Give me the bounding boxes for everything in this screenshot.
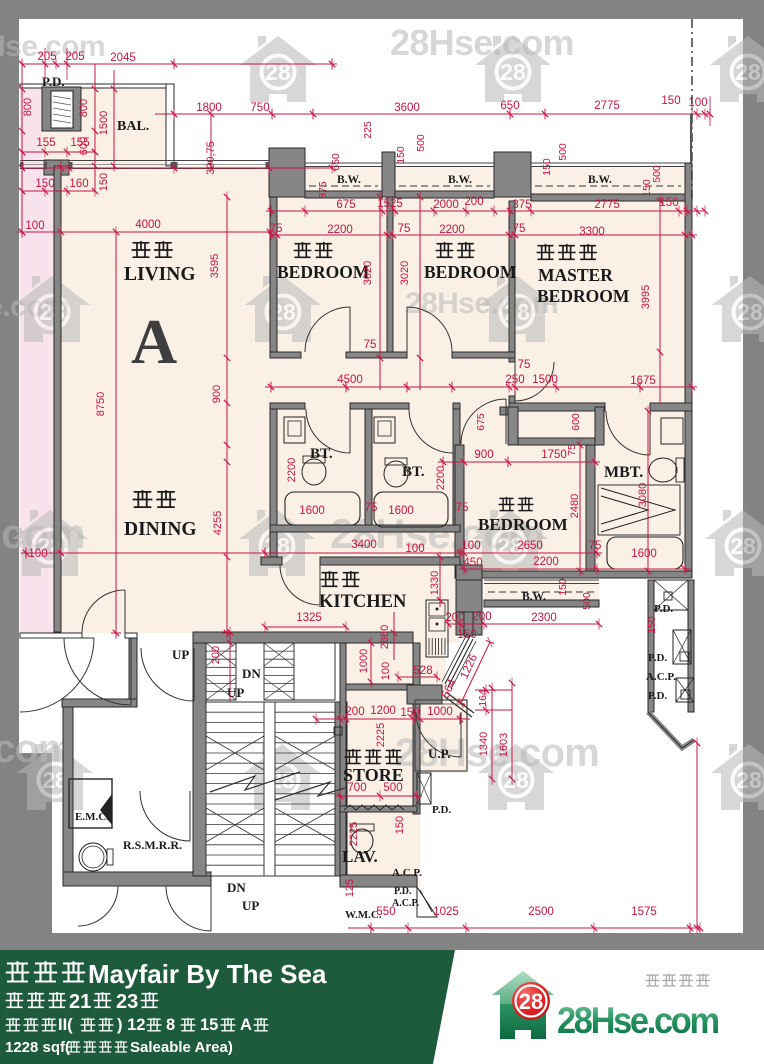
- svg-text:2200: 2200: [286, 458, 298, 482]
- svg-text:550: 550: [376, 906, 395, 918]
- svg-text:8750: 8750: [95, 392, 107, 416]
- svg-text:P.D.: P.D.: [648, 652, 667, 664]
- svg-text:4000: 4000: [135, 219, 161, 231]
- svg-text:100: 100: [28, 548, 47, 560]
- svg-text:75: 75: [365, 502, 378, 514]
- svg-text:700: 700: [347, 782, 366, 794]
- svg-text:B.W.: B.W.: [522, 591, 546, 603]
- svg-text:1330: 1330: [429, 571, 441, 595]
- svg-text:500: 500: [557, 143, 569, 161]
- svg-text:A.C.P.: A.C.P.: [392, 898, 420, 909]
- svg-text:P.D.: P.D.: [654, 603, 673, 615]
- svg-text:155: 155: [36, 137, 55, 149]
- svg-text:875: 875: [317, 181, 329, 199]
- svg-text:150: 150: [641, 179, 653, 197]
- svg-text:B.W.: B.W.: [448, 174, 472, 186]
- svg-text:1600: 1600: [299, 505, 325, 517]
- svg-text:2225: 2225: [375, 723, 387, 747]
- svg-text:528: 528: [413, 665, 432, 677]
- svg-text:450: 450: [463, 557, 482, 569]
- svg-text:150: 150: [661, 95, 680, 107]
- svg-text:150: 150: [35, 178, 54, 190]
- svg-text:3020: 3020: [399, 261, 411, 285]
- svg-text:R.S.M.R.R.: R.S.M.R.R.: [123, 838, 182, 852]
- svg-text:2200: 2200: [327, 224, 353, 236]
- svg-text:28: 28: [503, 767, 529, 793]
- svg-text:1000: 1000: [427, 706, 453, 718]
- svg-text:800: 800: [78, 99, 90, 117]
- svg-text:28Hse.com: 28Hse.com: [390, 22, 574, 63]
- svg-text:1500: 1500: [532, 374, 558, 386]
- svg-text:1200: 1200: [370, 705, 396, 717]
- svg-text:) 12: ) 12: [117, 1016, 145, 1034]
- svg-text:DN: DN: [242, 666, 261, 681]
- svg-text:28: 28: [504, 299, 530, 325]
- svg-text:BEDROOM: BEDROOM: [424, 262, 517, 282]
- svg-text:28: 28: [730, 533, 756, 559]
- svg-text:DN: DN: [227, 880, 246, 895]
- svg-text:500: 500: [581, 592, 593, 610]
- svg-text:150: 150: [395, 146, 407, 164]
- svg-text:28: 28: [737, 299, 763, 325]
- svg-text:2480: 2480: [569, 494, 581, 518]
- svg-text:21: 21: [69, 991, 91, 1013]
- svg-text:675: 675: [336, 199, 355, 211]
- svg-text:P.D.: P.D.: [648, 690, 667, 702]
- svg-text:BAL.: BAL.: [117, 119, 149, 134]
- svg-text:8: 8: [166, 1016, 175, 1034]
- svg-text:2880: 2880: [379, 625, 391, 649]
- svg-text:100: 100: [405, 543, 424, 555]
- svg-text:28: 28: [265, 59, 291, 85]
- svg-text:160: 160: [69, 178, 88, 190]
- svg-text:2200: 2200: [439, 224, 465, 236]
- svg-text:750: 750: [250, 102, 269, 114]
- svg-text:2045: 2045: [110, 52, 136, 64]
- svg-text:150: 150: [557, 578, 569, 596]
- svg-text:P.D.: P.D.: [394, 886, 412, 897]
- svg-text:1228 sqf(: 1228 sqf(: [5, 1039, 70, 1056]
- svg-text:LAV.: LAV.: [342, 847, 378, 866]
- svg-text:P.D.: P.D.: [432, 804, 451, 816]
- svg-text:2650: 2650: [517, 540, 543, 552]
- svg-text:A.C.P.: A.C.P.: [392, 867, 422, 879]
- svg-text:75: 75: [364, 339, 377, 351]
- svg-text:28: 28: [519, 989, 543, 1014]
- svg-text:100: 100: [461, 540, 480, 552]
- svg-text:3600: 3600: [394, 102, 420, 114]
- svg-text:100: 100: [380, 662, 392, 680]
- svg-text:150: 150: [98, 173, 110, 191]
- svg-text:75: 75: [398, 223, 411, 235]
- svg-text:15: 15: [200, 1016, 218, 1034]
- svg-text:650: 650: [330, 153, 342, 171]
- svg-text:75: 75: [518, 359, 531, 371]
- svg-text:MASTER: MASTER: [538, 265, 613, 285]
- svg-text:23: 23: [116, 991, 138, 1013]
- svg-text:150: 150: [400, 707, 419, 719]
- svg-text:BT.: BT.: [310, 446, 333, 462]
- svg-text:200: 200: [345, 706, 364, 718]
- svg-text:1340: 1340: [478, 732, 490, 756]
- svg-text:2225: 2225: [348, 822, 360, 846]
- svg-text:2500: 2500: [528, 906, 554, 918]
- svg-text:A: A: [131, 306, 177, 377]
- svg-text:2200: 2200: [533, 556, 559, 568]
- svg-text:1325: 1325: [296, 612, 322, 624]
- svg-text:600: 600: [570, 413, 582, 431]
- svg-text:BEDROOM: BEDROOM: [537, 286, 630, 306]
- svg-text:28: 28: [736, 767, 762, 793]
- svg-text:3595: 3595: [209, 254, 221, 278]
- svg-text:B.W.: B.W.: [337, 174, 361, 186]
- svg-text:2200: 2200: [435, 466, 447, 490]
- svg-text:125: 125: [344, 879, 356, 897]
- svg-text:U.P.: U.P.: [428, 746, 451, 761]
- svg-text:200: 200: [445, 612, 464, 624]
- svg-text:900: 900: [474, 449, 493, 461]
- svg-text:MBT.: MBT.: [604, 464, 643, 481]
- svg-text:1575: 1575: [631, 906, 657, 918]
- svg-text:500: 500: [415, 134, 427, 152]
- svg-text:1600: 1600: [388, 505, 414, 517]
- svg-text:UP: UP: [242, 898, 259, 913]
- svg-text:675: 675: [475, 413, 487, 431]
- svg-text:2775: 2775: [594, 100, 620, 112]
- svg-text:28: 28: [500, 59, 526, 85]
- svg-text:100: 100: [25, 220, 44, 232]
- svg-text:300,75: 300,75: [205, 141, 217, 175]
- svg-text:100: 100: [688, 97, 707, 109]
- svg-text:A.C.P.: A.C.P.: [646, 671, 676, 683]
- svg-text:28Hse.com: 28Hse.com: [557, 1000, 718, 1041]
- svg-text:150: 150: [394, 816, 406, 834]
- svg-text:200: 200: [464, 196, 483, 208]
- svg-text:150: 150: [541, 158, 553, 176]
- svg-text:E.M.C.: E.M.C.: [75, 811, 109, 823]
- svg-text:3995: 3995: [640, 285, 652, 309]
- svg-text:II(: II(: [58, 1016, 73, 1034]
- svg-text:150: 150: [646, 616, 658, 634]
- svg-text:3400: 3400: [351, 539, 377, 551]
- svg-text:1500: 1500: [98, 111, 110, 135]
- svg-text:3300: 3300: [579, 226, 605, 238]
- svg-text:1750: 1750: [541, 449, 567, 461]
- svg-text:205: 205: [37, 51, 56, 63]
- svg-text:200: 200: [210, 646, 222, 664]
- svg-text:4255: 4255: [212, 511, 224, 535]
- svg-text:75: 75: [566, 444, 578, 456]
- svg-text:1000: 1000: [358, 649, 370, 673]
- svg-text:4500: 4500: [337, 374, 363, 386]
- svg-text:3020: 3020: [362, 261, 374, 285]
- svg-text:2300: 2300: [531, 612, 557, 624]
- svg-text:LIVING: LIVING: [124, 264, 196, 285]
- svg-text:1025: 1025: [433, 906, 459, 918]
- svg-text:DINING: DINING: [124, 519, 197, 540]
- svg-text:225: 225: [362, 121, 374, 139]
- svg-text:205: 205: [65, 51, 84, 63]
- svg-text:KITCHEN: KITCHEN: [319, 592, 407, 612]
- svg-text:BEDROOM: BEDROOM: [277, 262, 370, 282]
- svg-text:BT.: BT.: [402, 464, 425, 480]
- svg-text:75: 75: [456, 502, 469, 514]
- svg-text:900: 900: [211, 385, 223, 403]
- svg-text:200: 200: [472, 611, 491, 623]
- svg-text:375: 375: [512, 199, 531, 211]
- svg-text:75: 75: [589, 540, 602, 552]
- svg-text:Saleable Area): Saleable Area): [130, 1039, 233, 1056]
- svg-text:1675: 1675: [630, 375, 656, 387]
- svg-text:1600: 1600: [631, 548, 657, 560]
- svg-text:600: 600: [78, 137, 90, 155]
- svg-text:2775: 2775: [594, 199, 620, 211]
- svg-text:A: A: [240, 1016, 252, 1034]
- svg-text:UP: UP: [172, 647, 189, 662]
- svg-text:Mayfair By The Sea: Mayfair By The Sea: [88, 959, 327, 989]
- svg-text:75: 75: [513, 223, 526, 235]
- svg-text:1525: 1525: [377, 198, 403, 210]
- svg-text:3080: 3080: [637, 483, 649, 507]
- svg-text:150: 150: [457, 629, 476, 641]
- svg-text:B.W.: B.W.: [588, 174, 612, 186]
- svg-text:500: 500: [383, 782, 402, 794]
- svg-text:28: 28: [735, 59, 761, 85]
- svg-text:1603: 1603: [498, 733, 510, 757]
- svg-text:BEDROOM: BEDROOM: [478, 515, 568, 534]
- svg-text:2000: 2000: [433, 199, 459, 211]
- svg-text:800: 800: [22, 98, 34, 116]
